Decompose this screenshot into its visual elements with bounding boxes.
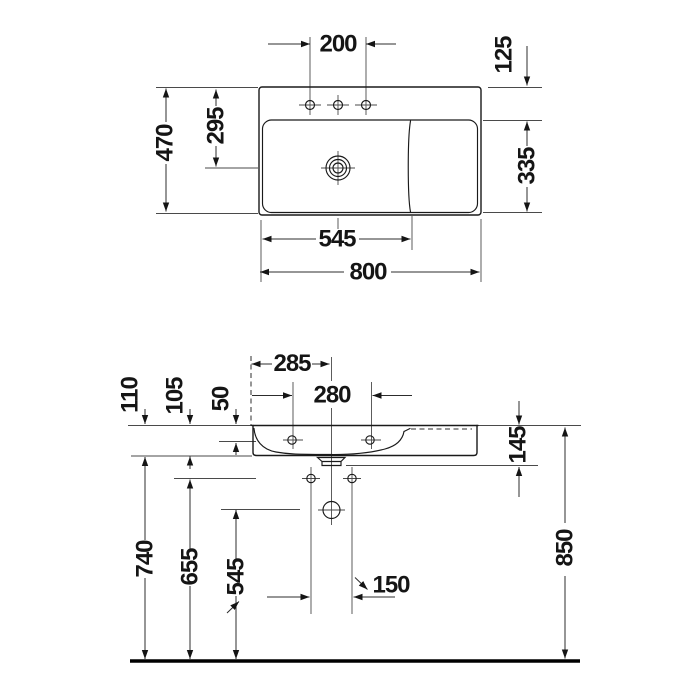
dim-label-545-front: 545 [223, 558, 250, 596]
basin-bowl-curve [254, 429, 404, 455]
leader-arrow-150 [355, 578, 368, 590]
leader-arrow-545 [227, 602, 239, 614]
dim-label-740: 740 [132, 540, 159, 578]
dim-label-50: 50 [208, 386, 235, 411]
dim-label-545-top: 545 [318, 226, 356, 253]
dim-label-850: 850 [552, 529, 579, 567]
dim-label-285: 285 [273, 350, 311, 377]
dim-label-110: 110 [117, 376, 144, 412]
basin-rim-top [263, 120, 478, 213]
basin-shelf-divider [408, 121, 410, 212]
dim-label-800: 800 [349, 259, 387, 286]
dim-label-655: 655 [177, 548, 204, 586]
dim-label-295: 295 [203, 107, 230, 145]
dim-label-280: 280 [313, 382, 351, 409]
top-view: 200 125 470 295 335 545 800 [152, 31, 543, 286]
dim-label-105: 105 [162, 377, 189, 415]
dim-label-200: 200 [319, 31, 357, 58]
front-view: 285 280 110 105 50 145 850 740 655 545 1… [117, 350, 582, 661]
basin-outline-front [253, 426, 477, 456]
dimension-drawing-page: 200 125 470 295 335 545 800 [0, 0, 700, 700]
shelf-edge [404, 429, 410, 432]
dim-label-150: 150 [372, 572, 410, 599]
dim-label-470: 470 [152, 124, 179, 162]
dim-label-125: 125 [491, 36, 518, 74]
dim-label-145: 145 [505, 426, 532, 464]
technical-drawing: 200 125 470 295 335 545 800 [0, 0, 700, 700]
dim-label-335: 335 [514, 147, 541, 185]
